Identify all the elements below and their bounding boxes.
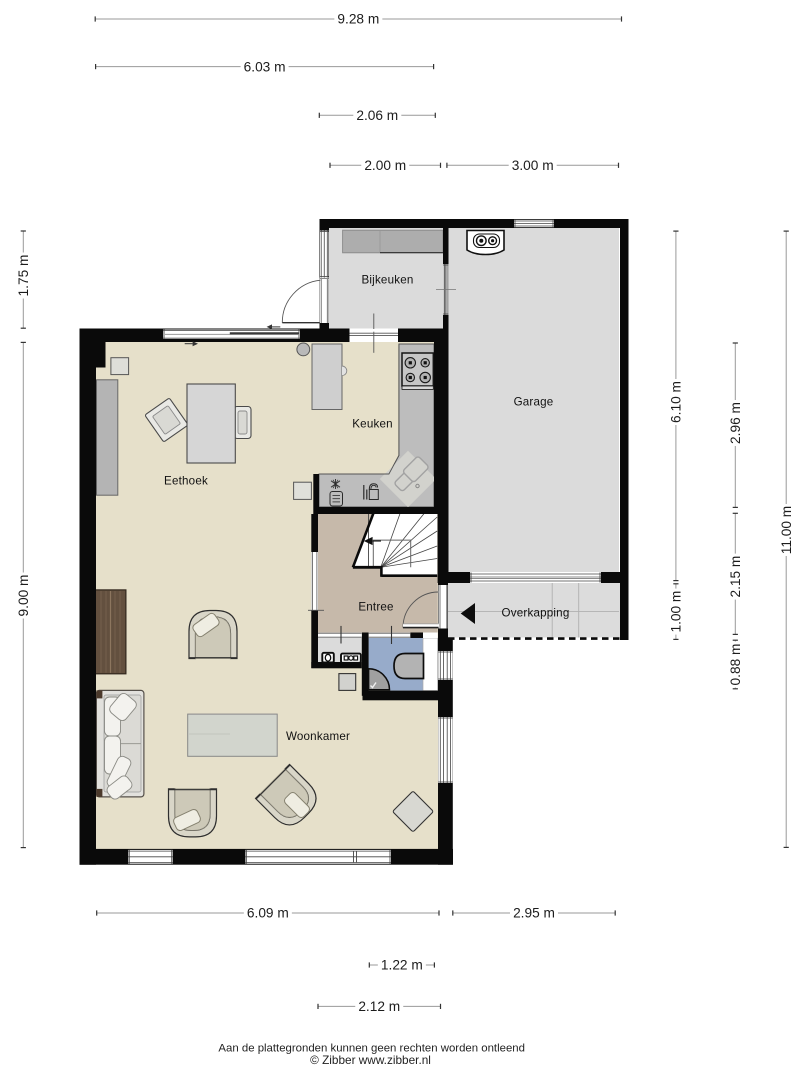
svg-text:6.09 m: 6.09 m <box>247 906 289 921</box>
svg-text:Overkapping: Overkapping <box>502 607 570 620</box>
svg-text:1.22 m: 1.22 m <box>381 958 423 973</box>
svg-text:6.03 m: 6.03 m <box>244 59 286 74</box>
svg-text:1.00 m: 1.00 m <box>669 591 684 633</box>
svg-text:Eethoek: Eethoek <box>164 475 208 488</box>
svg-text:Entree: Entree <box>358 601 393 614</box>
svg-text:9.00 m: 9.00 m <box>16 575 31 617</box>
svg-text:2.06 m: 2.06 m <box>356 108 398 123</box>
svg-text:© Zibber www.zibber.nl: © Zibber www.zibber.nl <box>310 1053 431 1067</box>
svg-text:Bijkeuken: Bijkeuken <box>361 274 413 287</box>
svg-text:2.12 m: 2.12 m <box>358 999 400 1014</box>
svg-text:1.75 m: 1.75 m <box>16 255 31 297</box>
svg-text:11.00 m: 11.00 m <box>779 506 794 554</box>
svg-text:6.10 m: 6.10 m <box>669 381 684 423</box>
svg-text:0.88 m: 0.88 m <box>728 644 743 686</box>
svg-text:2.96 m: 2.96 m <box>728 402 743 444</box>
svg-text:3.00 m: 3.00 m <box>512 158 554 173</box>
svg-text:9.28 m: 9.28 m <box>337 12 379 27</box>
svg-text:2.00 m: 2.00 m <box>364 158 406 173</box>
svg-text:Garage: Garage <box>514 396 554 409</box>
svg-text:Woonkamer: Woonkamer <box>286 730 350 743</box>
svg-text:Keuken: Keuken <box>352 418 393 431</box>
svg-text:2.15 m: 2.15 m <box>728 556 743 598</box>
svg-text:2.95 m: 2.95 m <box>513 906 555 921</box>
